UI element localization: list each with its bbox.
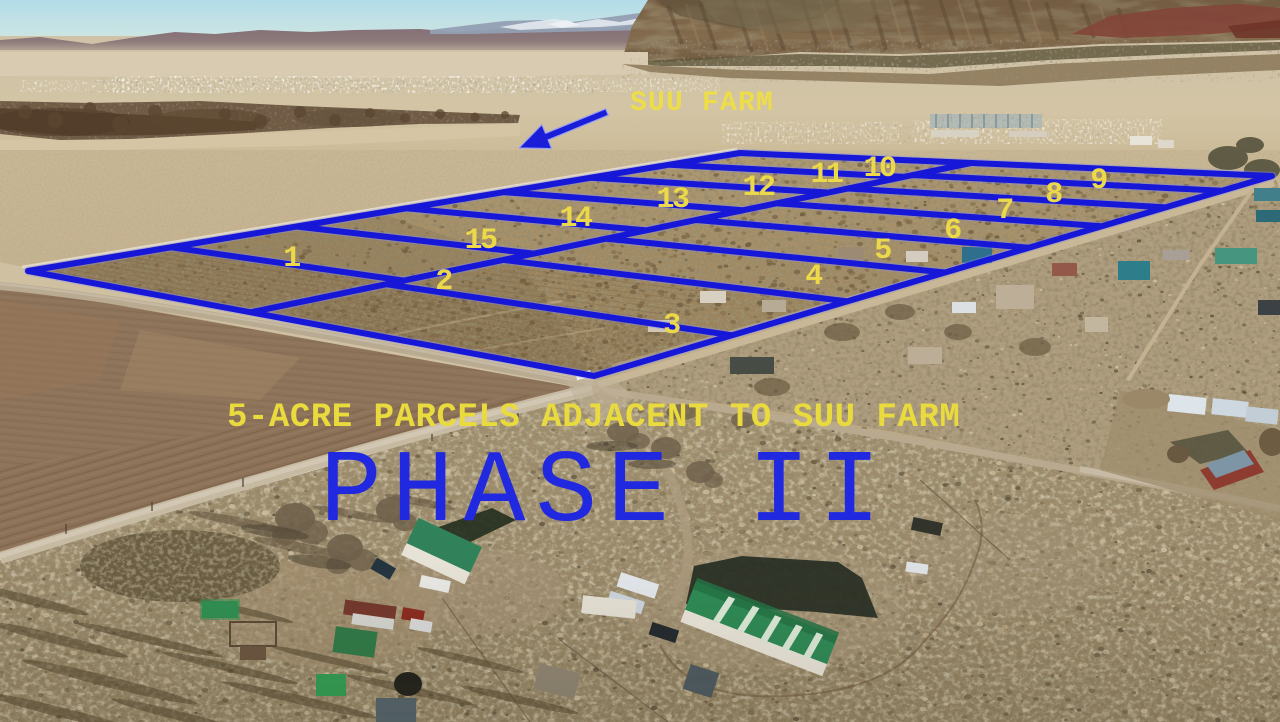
svg-text:15: 15 [464,224,497,258]
svg-text:5: 5 [874,234,891,268]
svg-text:II: II [748,434,890,551]
svg-text:7: 7 [996,194,1012,228]
svg-text:3: 3 [663,309,680,343]
svg-text:SUU FARM: SUU FARM [630,88,774,119]
svg-text:12: 12 [742,171,775,205]
svg-text:8: 8 [1045,178,1062,212]
svg-text:4: 4 [805,260,823,294]
svg-text:14: 14 [559,202,593,236]
svg-text:11: 11 [810,158,843,192]
svg-text:1: 1 [283,242,300,276]
svg-text:5-ACRE PARCELS ADJACENT TO SUU: 5-ACRE PARCELS ADJACENT TO SUU FARM [227,399,960,437]
svg-text:PHASE: PHASE [320,434,679,551]
svg-text:9: 9 [1090,164,1107,198]
svg-text:10: 10 [863,152,896,186]
svg-text:13: 13 [656,183,689,217]
svg-text:6: 6 [944,214,961,248]
svg-text:2: 2 [435,265,452,299]
